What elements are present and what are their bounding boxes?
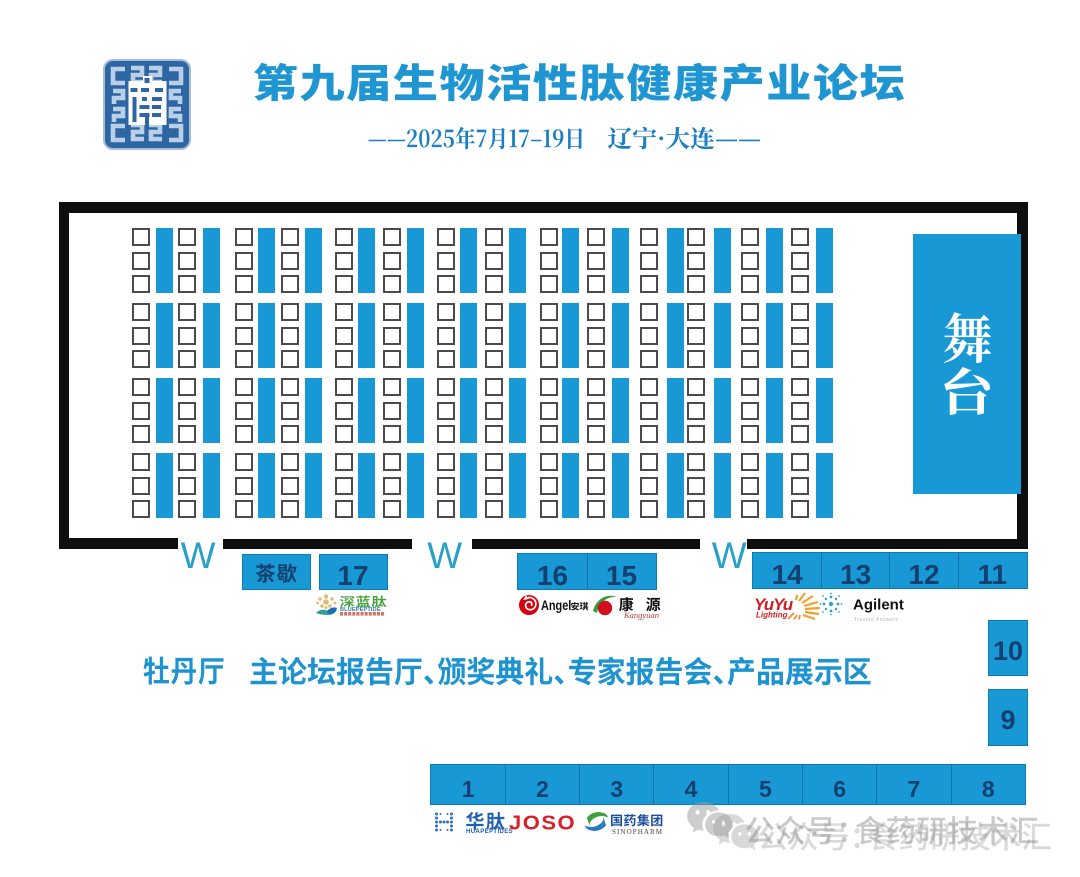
svg-text:Lighting: Lighting (756, 611, 788, 620)
svg-text:Agilent: Agilent (853, 597, 904, 614)
svg-text:Trusted Answers: Trusted Answers (854, 617, 899, 622)
